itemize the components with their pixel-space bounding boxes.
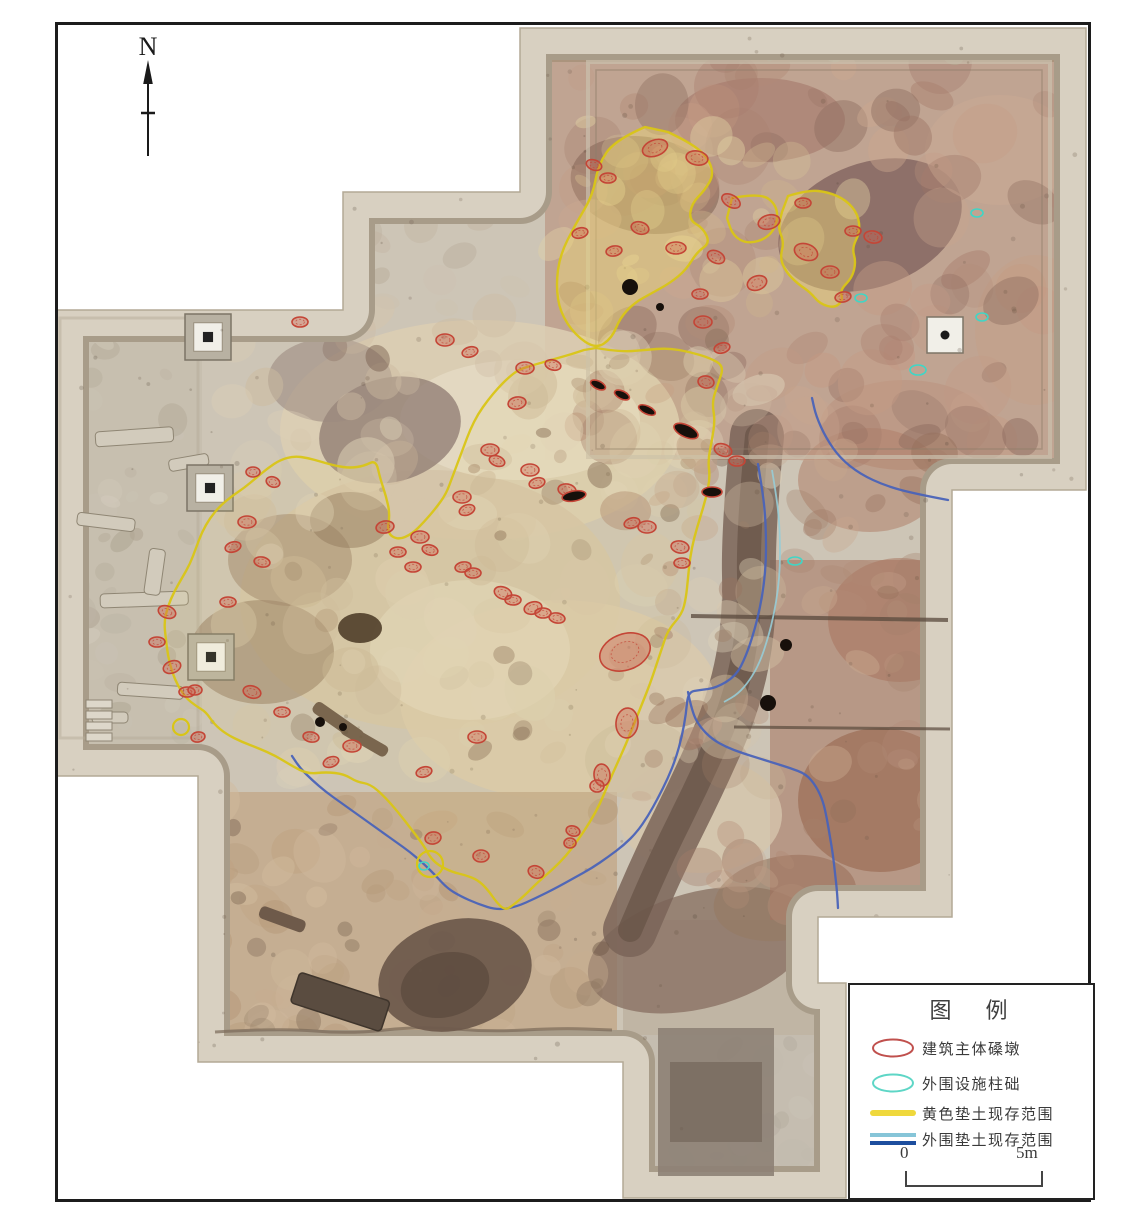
north-arrow: N <box>126 34 170 165</box>
legend-item-yellow-extent: 黄色垫土现存范围 <box>864 1100 1087 1126</box>
pier-symbol-icon <box>864 1038 922 1058</box>
legend-title: 图 例 <box>850 993 1093 1025</box>
column-base-symbol-icon <box>864 1073 922 1093</box>
legend-item-label: 外围设施柱础 <box>922 1073 1021 1094</box>
legend-item-label: 黄色垫土现存范围 <box>922 1103 1054 1124</box>
scale-bracket <box>850 1143 1097 1195</box>
site-plan-figure: N 图 例 建筑主体磉墩 外围设施柱础 黄色垫土现存范围 <box>0 0 1145 1215</box>
legend-item-pier: 建筑主体磉墩 <box>864 1035 1087 1061</box>
legend-item-label: 建筑主体磉墩 <box>922 1038 1021 1059</box>
legend-box: 图 例 建筑主体磉墩 外围设施柱础 黄色垫土现存范围 <box>848 983 1095 1200</box>
north-label: N <box>126 34 170 60</box>
yellow-line-symbol-icon <box>864 1108 922 1118</box>
north-arrow-icon <box>138 60 158 160</box>
legend-item-column-base: 外围设施柱础 <box>864 1070 1087 1096</box>
scale-bar: 0 5m <box>850 1143 1097 1195</box>
